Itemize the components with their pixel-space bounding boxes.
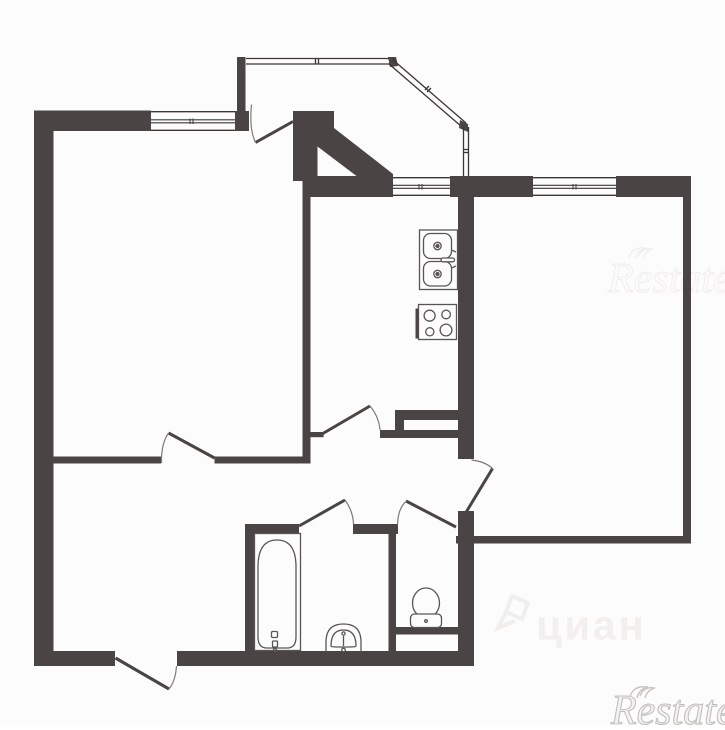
svg-text:циан: циан bbox=[536, 602, 646, 649]
svg-text:Restate: Restate bbox=[607, 256, 725, 302]
svg-text:Restate: Restate bbox=[610, 688, 725, 725]
